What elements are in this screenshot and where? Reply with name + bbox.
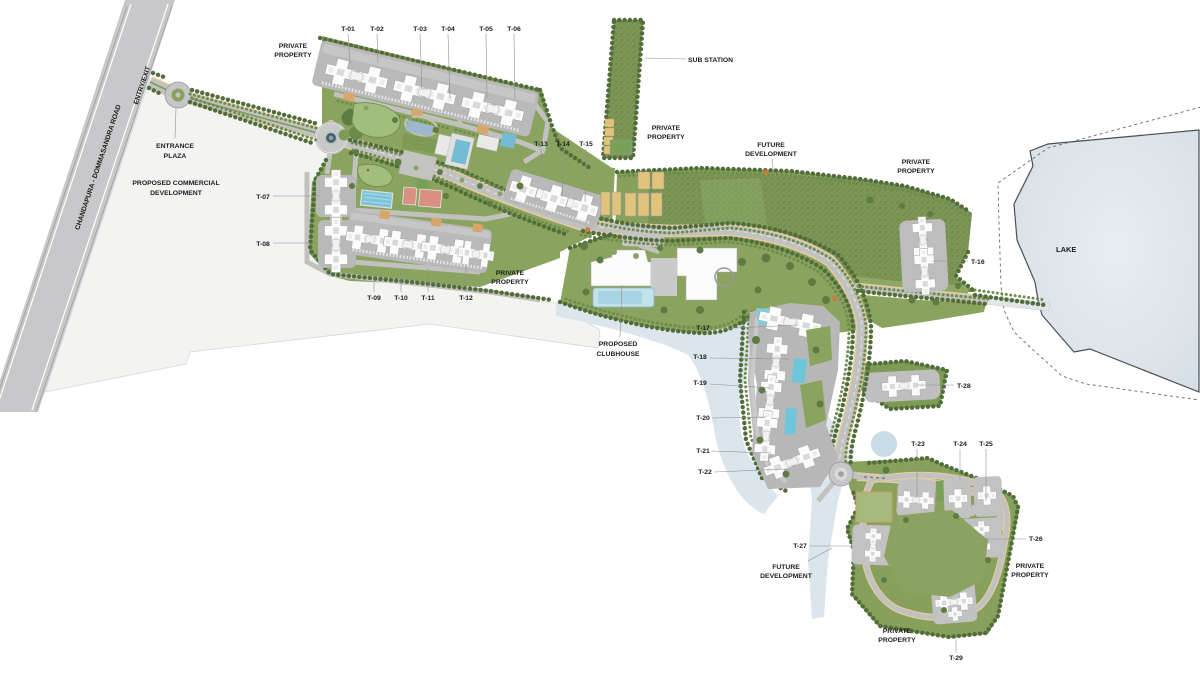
svg-text:PRIVATE: PRIVATE: [279, 43, 308, 50]
svg-text:ENTRANCE: ENTRANCE: [156, 143, 194, 150]
svg-text:PRIVATE: PRIVATE: [496, 270, 525, 277]
svg-text:PLAZA: PLAZA: [164, 153, 187, 160]
svg-text:FUTURE: FUTURE: [772, 564, 800, 571]
svg-text:T-21: T-21: [696, 448, 710, 455]
svg-text:PROPERTY: PROPERTY: [1011, 572, 1049, 579]
svg-text:T-11: T-11: [421, 295, 434, 302]
svg-text:T-03: T-03: [413, 26, 427, 33]
svg-text:PRIVATE: PRIVATE: [883, 628, 912, 635]
svg-text:DEVELOPMENT: DEVELOPMENT: [760, 573, 813, 580]
svg-text:T-15: T-15: [579, 141, 593, 148]
svg-text:T-17: T-17: [696, 325, 710, 332]
svg-text:FUTURE: FUTURE: [757, 142, 785, 149]
svg-text:T-20: T-20: [696, 415, 710, 422]
svg-text:PROPERTY: PROPERTY: [647, 134, 685, 141]
svg-text:PROPOSED COMMERCIAL: PROPOSED COMMERCIAL: [132, 180, 219, 187]
svg-text:T-08: T-08: [256, 241, 270, 248]
svg-text:PRIVATE: PRIVATE: [902, 159, 931, 166]
svg-text:SUB STATION: SUB STATION: [688, 57, 733, 64]
svg-text:T-23: T-23: [911, 441, 925, 448]
svg-text:T-22: T-22: [698, 469, 712, 476]
svg-text:T-29: T-29: [949, 655, 963, 662]
svg-text:PRIVATE: PRIVATE: [1016, 563, 1045, 570]
svg-text:PRIVATE: PRIVATE: [652, 125, 681, 132]
svg-text:PROPERTY: PROPERTY: [491, 279, 529, 286]
svg-text:T-05: T-05: [479, 26, 493, 33]
svg-text:CLUBHOUSE: CLUBHOUSE: [596, 351, 640, 358]
svg-text:T-28: T-28: [957, 383, 971, 390]
svg-text:T-14: T-14: [556, 141, 570, 148]
svg-text:T-04: T-04: [441, 26, 455, 33]
svg-text:T-01: T-01: [341, 26, 355, 33]
svg-text:T-16: T-16: [971, 259, 985, 266]
svg-text:T-09: T-09: [367, 295, 381, 302]
svg-text:T-18: T-18: [693, 354, 707, 361]
svg-text:T-12: T-12: [459, 295, 473, 302]
svg-text:PROPERTY: PROPERTY: [274, 52, 312, 59]
svg-text:T-19: T-19: [693, 380, 707, 387]
svg-text:LAKE: LAKE: [1056, 245, 1076, 254]
svg-text:DEVELOPMENT: DEVELOPMENT: [150, 190, 203, 197]
svg-text:T-02: T-02: [370, 26, 384, 33]
svg-text:T-10: T-10: [394, 295, 408, 302]
svg-text:T-06: T-06: [507, 26, 521, 33]
svg-text:T-24: T-24: [953, 441, 967, 448]
svg-text:PROPERTY: PROPERTY: [897, 168, 935, 175]
svg-text:T-25: T-25: [979, 441, 993, 448]
svg-text:DEVELOPMENT: DEVELOPMENT: [745, 151, 798, 158]
svg-text:PROPOSED: PROPOSED: [599, 341, 638, 348]
svg-text:PROPERTY: PROPERTY: [878, 637, 916, 644]
svg-text:T-27: T-27: [793, 543, 807, 550]
svg-text:T-07: T-07: [256, 194, 270, 201]
svg-text:T-26: T-26: [1029, 536, 1043, 543]
svg-text:T-13: T-13: [534, 141, 548, 148]
